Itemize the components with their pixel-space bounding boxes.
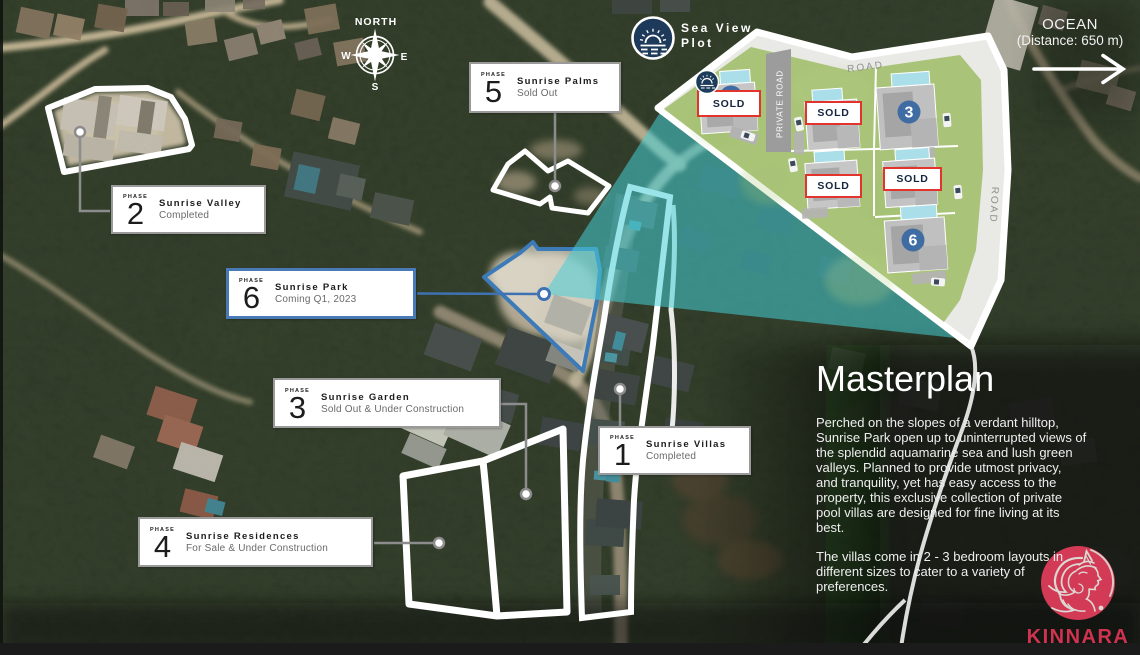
svg-text:3: 3 [905,105,914,122]
svg-text:6: 6 [909,233,918,250]
svg-text:E: E [401,52,408,63]
svg-text:ROAD: ROAD [987,186,1000,223]
svg-text:S: S [372,82,379,93]
svg-text:W: W [341,51,351,62]
svg-text:PRIVATE ROAD: PRIVATE ROAD [776,70,785,138]
